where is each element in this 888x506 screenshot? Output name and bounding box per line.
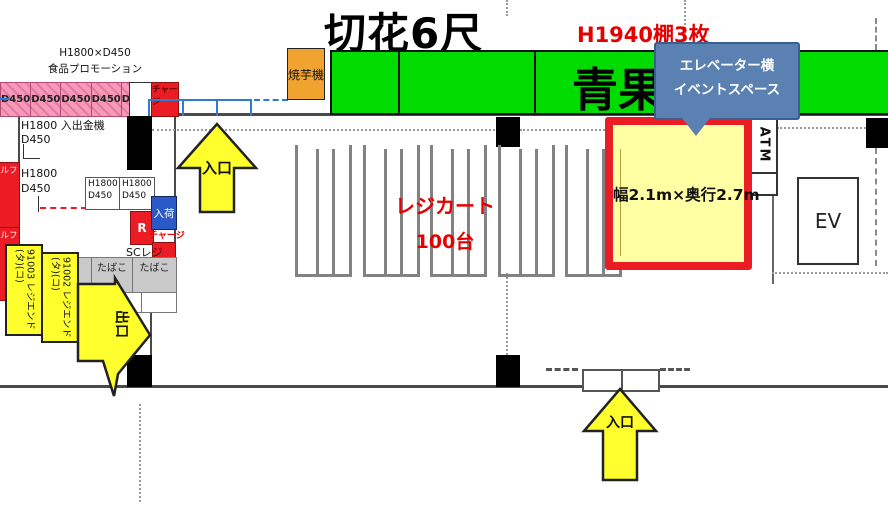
guide-line — [506, 273, 508, 355]
entrance-arrow-top: 入口 — [176, 122, 258, 214]
elevator-label: EV — [815, 209, 841, 233]
register-end-label: 91003 レジエンド(タ)(コ) — [5, 244, 43, 336]
seika-sign: 青果 — [572, 54, 664, 120]
red-dashed-line — [40, 207, 87, 209]
guide-line — [772, 272, 888, 274]
shelf-divider — [398, 52, 400, 113]
self-register-box: セルフ — [0, 162, 20, 230]
register-end-text: 91003 レジエンド(タ)(コ) — [13, 249, 36, 331]
promo-cell-label: D450 — [61, 94, 90, 105]
charge-label: チャージ — [149, 228, 185, 241]
blue-door-panel — [216, 101, 252, 116]
sc-register-label: SCレジ — [126, 244, 163, 260]
promo-shelf-cell: D450 — [31, 83, 61, 116]
guide-line — [520, 129, 605, 131]
r-box-label: R — [137, 221, 146, 235]
guide-line — [875, 148, 877, 266]
promo-shelf-label: H1800×D450 食品プロモーション — [28, 45, 162, 78]
cart-rack — [498, 145, 555, 277]
atm-room-wall — [772, 192, 774, 284]
self-register-label: セルフ — [0, 166, 18, 176]
callout-line1: エレベーター横 — [656, 55, 798, 79]
shelf2-label1: H1800 — [21, 167, 57, 180]
promo-shelf-label-line1: H1800×D450 — [59, 47, 131, 59]
receiving-label: 入荷 — [154, 206, 175, 221]
h1800-box: H1800 D450 — [85, 177, 121, 210]
yakiimo-box: 焼芋機 — [287, 48, 325, 100]
blue-door — [148, 99, 252, 116]
h1800-box-line2: D450 — [88, 191, 120, 203]
bottom-door-dashes — [546, 368, 578, 371]
callout-line2: イベントスペース — [656, 79, 798, 103]
guide-line — [777, 127, 866, 129]
exit-arrow: 出口 — [78, 278, 152, 398]
guide-line — [875, 18, 877, 50]
shelf-divider — [534, 52, 536, 113]
receiving-box: 入荷 — [151, 196, 177, 230]
guide-line — [139, 404, 141, 502]
blue-door-dashes — [254, 99, 288, 101]
blue-door-track — [0, 98, 10, 100]
column — [496, 117, 520, 147]
entrance-arrow-shape — [584, 389, 656, 480]
h1800-box: H1800 D450 — [119, 177, 155, 210]
promo-shelf-cell: D450 — [92, 83, 122, 116]
column — [127, 143, 152, 170]
cart-rack-rail — [519, 149, 538, 277]
column — [496, 355, 520, 387]
register-end-text: 91002 レジエンド(タ)(コ) — [49, 257, 72, 339]
bracket-mark — [38, 196, 39, 212]
blue-door-panel — [182, 101, 216, 116]
h1800-box-line1: H1800 — [88, 179, 120, 191]
promo-cell-label: D450 — [31, 94, 60, 105]
shelf2-label2: D450 — [21, 182, 50, 195]
bracket-mark — [23, 144, 40, 159]
cart-rack-rail — [316, 149, 335, 277]
guide-line — [506, 0, 508, 16]
promo-shelf-row: D450 D450 D450 D450 D450 — [0, 82, 130, 117]
entrance-arrow-label: 入口 — [606, 415, 634, 431]
cart-count-label: レジカート 100台 — [385, 190, 505, 254]
self-register-label: セルフ — [0, 231, 18, 241]
cart-rack — [295, 145, 352, 277]
yakiimo-label: 焼芋機 — [288, 66, 324, 83]
cash-machine-label: H1800 入出金機 — [21, 117, 105, 133]
cart-rack-rail — [586, 149, 605, 277]
atm-label: ATM — [757, 127, 772, 164]
h1800-box-line1: H1800 — [122, 179, 154, 191]
event-space: 幅2.1m×奥行2.7m — [605, 117, 752, 270]
blue-door-panel — [148, 101, 182, 116]
cart-count-line2: 100台 — [385, 227, 505, 254]
floor-plan: H1800×D450 食品プロモーション D450 D450 D450 D450… — [0, 0, 888, 506]
cash-machine-line1: H1800 入出金機 — [21, 119, 105, 132]
entrance-arrow-label: 入口 — [202, 159, 232, 177]
promo-shelf-cell: D450 — [61, 83, 91, 116]
entrance-arrow-bottom: 入口 — [582, 387, 658, 482]
exit-arrow-label: 出口 — [113, 310, 130, 338]
h1800-box-line2: D450 — [122, 191, 154, 203]
column — [127, 116, 152, 143]
bottom-door-dashes — [660, 368, 690, 371]
atm-box: ATM — [750, 116, 778, 174]
callout-pointer — [682, 118, 710, 136]
cart-count-line1: レジカート — [385, 190, 505, 219]
register-end-label: 91002 レジエンド(タ)(コ) — [41, 252, 79, 343]
event-space-size: 幅2.1m×奥行2.7m — [613, 183, 744, 205]
elevator-event-callout: エレベーター横 イベントスペース — [654, 42, 800, 120]
elevator-box: EV — [797, 177, 859, 265]
column — [866, 118, 888, 148]
promo-cell-label: D450 — [92, 94, 121, 105]
promo-shelf-label-line2: 食品プロモーション — [48, 63, 142, 75]
